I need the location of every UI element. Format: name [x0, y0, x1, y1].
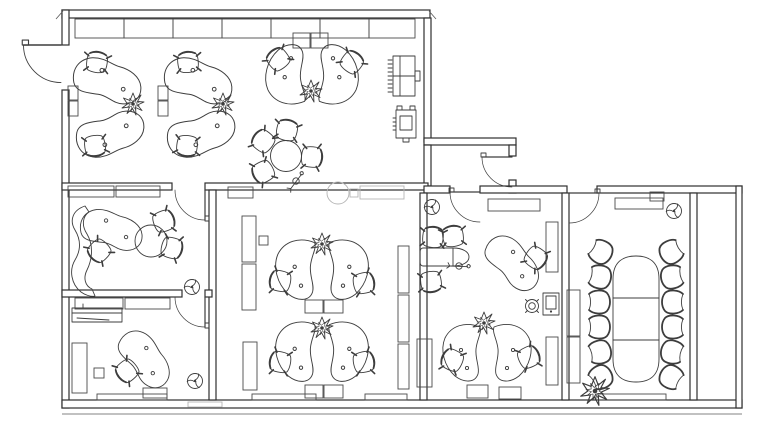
safe: [543, 293, 559, 315]
cabinet: [398, 295, 409, 342]
wall-segment: [690, 193, 697, 400]
cabinet: [242, 264, 256, 310]
cabinet: [320, 19, 369, 38]
chair: [174, 50, 203, 73]
annotation-lines-layer: [56, 11, 742, 414]
conference-table: [613, 256, 659, 382]
curved-sofa: [72, 206, 95, 296]
furniture-layer: [69, 43, 685, 406]
conf-chair: [662, 315, 683, 338]
wall-segment: [509, 145, 516, 156]
cabinet: [398, 344, 409, 389]
cabinet: [467, 385, 488, 398]
light-furniture-layer: [188, 182, 404, 407]
chair: [80, 134, 110, 158]
plant: [311, 317, 333, 339]
conf-chair: [659, 338, 684, 365]
cabinet: [324, 300, 343, 313]
chair: [300, 143, 323, 172]
kidney-desk: [72, 107, 149, 162]
cabinet: [293, 33, 310, 48]
wall-segment: [62, 10, 69, 45]
round-table: [271, 141, 302, 172]
wall-segment: [62, 183, 172, 190]
chair: [351, 347, 377, 378]
fan: [666, 204, 681, 219]
cabinet: [311, 33, 328, 48]
coat-stand: [445, 253, 471, 279]
cabinet: [222, 19, 271, 38]
cabinet: [499, 387, 521, 399]
door: [175, 190, 209, 221]
chair: [82, 50, 112, 74]
cabinet: [546, 337, 558, 385]
cabinet: [271, 19, 320, 38]
chair: [514, 340, 544, 373]
wall-segment: [424, 18, 431, 142]
cabinet: [546, 222, 558, 272]
wall-segment: [736, 186, 742, 408]
cabinets-layer: [68, 19, 666, 400]
wall-segment: [205, 183, 428, 190]
circle-extension: [135, 225, 167, 257]
cabinet: [243, 342, 257, 390]
kidney-desk: [478, 228, 548, 296]
door: [175, 297, 209, 328]
chair: [438, 224, 468, 248]
stool: [526, 300, 539, 313]
conf-chair: [656, 237, 686, 267]
chair: [247, 124, 280, 158]
plant: [473, 312, 495, 334]
cabinet: [615, 198, 663, 209]
chair: [82, 234, 116, 268]
wall-segment: [62, 400, 742, 408]
conf-chair: [589, 290, 610, 313]
wall-segment: [597, 186, 742, 193]
wall-segment: [424, 138, 516, 145]
copier-large: [388, 56, 420, 96]
counter: [72, 304, 122, 322]
kidney-desk: [163, 107, 240, 162]
fan: [187, 374, 202, 389]
cabinet: [259, 236, 268, 245]
door: [22, 40, 61, 83]
wall-segment: [62, 10, 430, 18]
cabinet: [242, 216, 256, 262]
cabinet: [75, 19, 124, 38]
cabinet: [125, 298, 170, 309]
cabinet: [398, 246, 409, 293]
wall-segment: [480, 186, 567, 193]
cabinet: [365, 394, 407, 400]
cabinet: [305, 385, 323, 398]
chair: [437, 343, 467, 376]
cabinet: [158, 101, 168, 116]
cabinet: [252, 394, 316, 400]
cabinet: [173, 19, 222, 38]
chair: [520, 241, 552, 275]
wall-segment: [62, 90, 69, 408]
cabinet: [94, 368, 104, 378]
chair: [267, 266, 293, 297]
chair: [150, 205, 179, 237]
conf-chair: [662, 290, 683, 313]
wall-segment: [562, 193, 569, 400]
wall-segment: [424, 186, 450, 193]
door: [481, 153, 512, 187]
cabinet: [75, 298, 123, 309]
conf-chair: [588, 264, 613, 291]
door: [449, 188, 480, 222]
wall-segment: [205, 290, 212, 297]
cabinet: [72, 343, 87, 393]
kidney-desk: [111, 323, 179, 393]
door: [569, 189, 600, 223]
cabinet: [369, 19, 415, 38]
conf-chair: [656, 362, 686, 392]
cabinet: [305, 300, 323, 313]
conf-chair: [588, 338, 613, 365]
chair: [110, 354, 143, 388]
wall-segment: [420, 193, 427, 400]
copier-small: [393, 106, 416, 142]
chair: [335, 46, 369, 79]
chair: [158, 232, 185, 263]
cabinet: [124, 19, 173, 38]
chair: [267, 347, 293, 378]
cabinet: [97, 394, 167, 400]
floor-plan: [0, 0, 768, 424]
chair: [272, 117, 303, 143]
fan: [184, 280, 199, 295]
cabinet: [488, 199, 540, 211]
desk-pair: [266, 45, 359, 104]
cabinet: [158, 86, 168, 100]
cabinet: [143, 388, 167, 398]
cabinet: [324, 385, 343, 398]
conf-chair: [589, 315, 610, 338]
conf-chair: [659, 264, 684, 291]
conf-chair: [587, 237, 617, 267]
wall-segment: [424, 145, 431, 186]
